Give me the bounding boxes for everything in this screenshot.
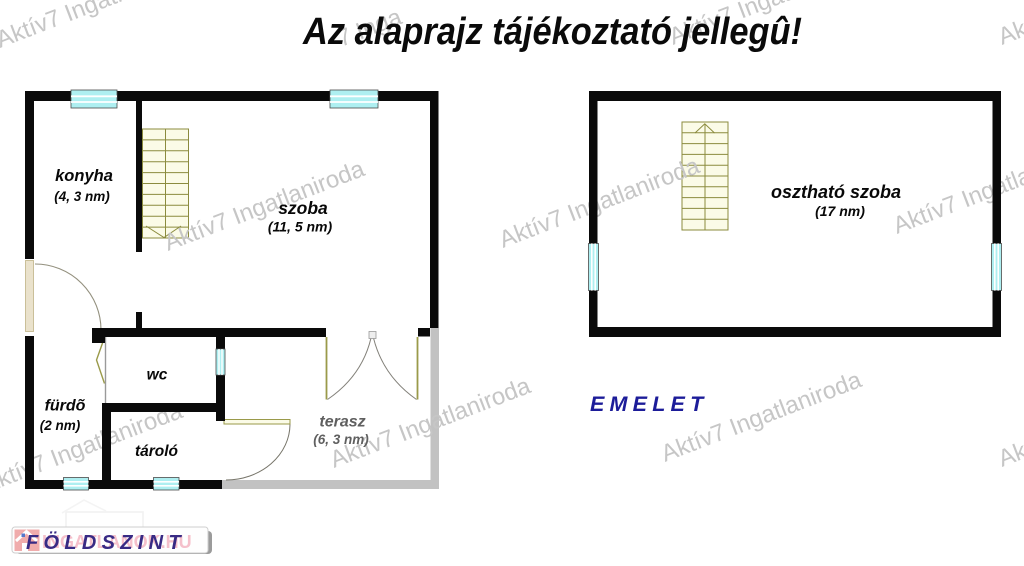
svg-text:(17 nm): (17 nm) bbox=[815, 203, 865, 219]
svg-text:Az alaprajz tájékoztató jelleg: Az alaprajz tájékoztató jellegû! bbox=[302, 11, 802, 53]
svg-text:FÖLDSZINT: FÖLDSZINT bbox=[26, 531, 186, 554]
svg-text:(2 nm): (2 nm) bbox=[40, 418, 81, 433]
svg-text:terasz: terasz bbox=[319, 414, 365, 431]
svg-text:(6, 3 nm): (6, 3 nm) bbox=[313, 432, 369, 447]
svg-text:szoba: szoba bbox=[278, 198, 328, 218]
svg-text:konyha: konyha bbox=[55, 167, 113, 185]
svg-text:(4, 3 nm): (4, 3 nm) bbox=[54, 189, 110, 204]
svg-text:osztható szoba: osztható szoba bbox=[771, 182, 901, 202]
svg-text:wc: wc bbox=[147, 367, 168, 384]
svg-text:tároló: tároló bbox=[135, 443, 178, 460]
svg-text:(11, 5 nm): (11, 5 nm) bbox=[268, 219, 333, 235]
svg-text:fürdõ: fürdõ bbox=[45, 398, 86, 415]
svg-text:EMELET: EMELET bbox=[590, 392, 708, 416]
